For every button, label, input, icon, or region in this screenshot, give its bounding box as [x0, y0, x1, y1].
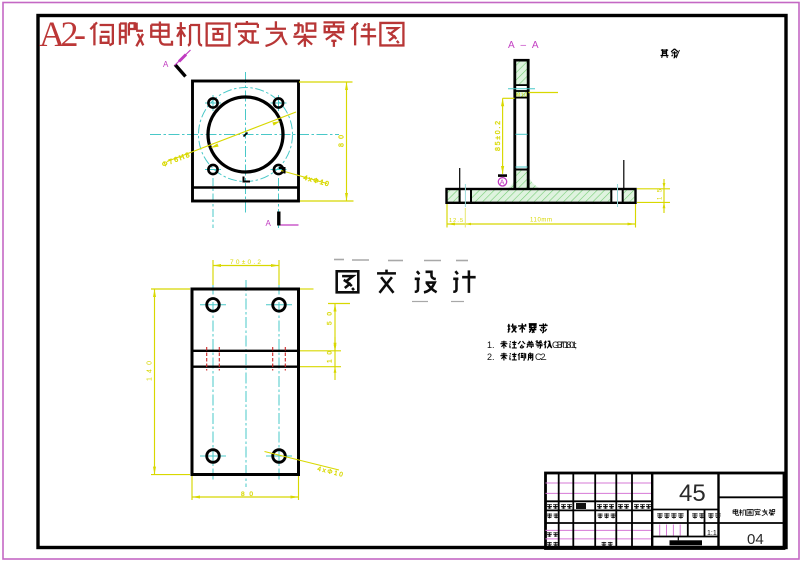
svg-text:12.5: 12.5 [449, 218, 463, 224]
svg-text:1:1: 1:1 [707, 530, 717, 537]
svg-text:A: A [163, 60, 169, 69]
svg-text:140: 140 [147, 361, 154, 381]
svg-text:C2.: C2. [535, 352, 547, 362]
svg-text:A: A [266, 219, 272, 228]
svg-text:1.: 1. [487, 340, 495, 350]
svg-text:A – A: A – A [508, 40, 540, 51]
svg-text:45: 45 [679, 480, 706, 507]
svg-text:04: 04 [747, 531, 764, 548]
svg-text:A: A [500, 180, 505, 187]
svg-text:GB/T1801;: GB/T1801; [552, 340, 577, 350]
svg-text:110mm: 110mm [530, 218, 552, 224]
svg-text:A2-: A2- [39, 14, 86, 54]
svg-text:M10: M10 [516, 93, 527, 99]
svg-text:2.: 2. [487, 352, 495, 362]
